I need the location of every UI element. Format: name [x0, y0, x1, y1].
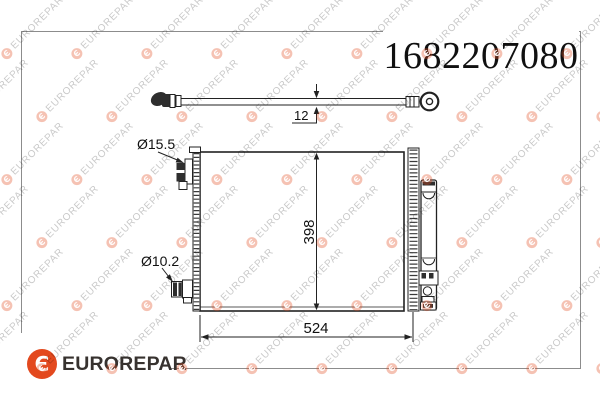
- watermark-tile: ЄEUROREPAR: [594, 183, 600, 250]
- part-number-box: 1682207080: [383, 27, 579, 84]
- eurorepar-logo-icon: Є: [27, 349, 57, 379]
- product-image: 1682207080 Є EUROREPAR: [0, 0, 600, 400]
- brand-logo: Є EUROREPAR: [16, 333, 170, 395]
- logo-glyph: Є: [35, 352, 50, 376]
- watermark-tile: ЄEUROREPAR: [594, 57, 600, 124]
- watermark-tile: ЄEUROREPAR: [594, 309, 600, 376]
- brand-wordmark: EUROREPAR: [62, 353, 187, 376]
- part-number: 1682207080: [384, 34, 579, 78]
